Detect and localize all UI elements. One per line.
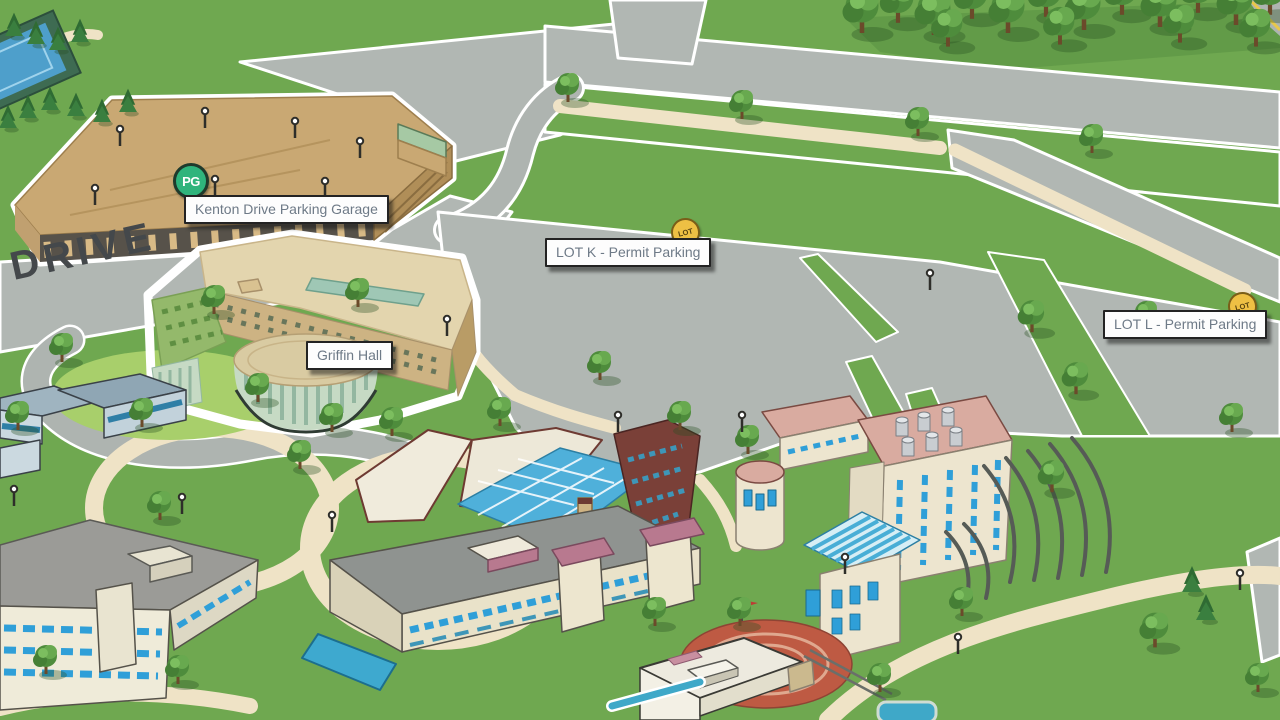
parking-garage-badge[interactable]: PG — [173, 163, 209, 199]
label-lot-k[interactable]: LOT K - Permit Parking — [545, 238, 711, 267]
campus-map-canvas — [0, 0, 1280, 720]
campus-map: DRIVE PG Kenton Drive Parking Garage Gri… — [0, 0, 1280, 720]
label-griffin-hall[interactable]: Griffin Hall — [306, 341, 393, 370]
label-kenton-drive-parking-garage[interactable]: Kenton Drive Parking Garage — [184, 195, 389, 224]
label-lot-l[interactable]: LOT L - Permit Parking — [1103, 310, 1267, 339]
